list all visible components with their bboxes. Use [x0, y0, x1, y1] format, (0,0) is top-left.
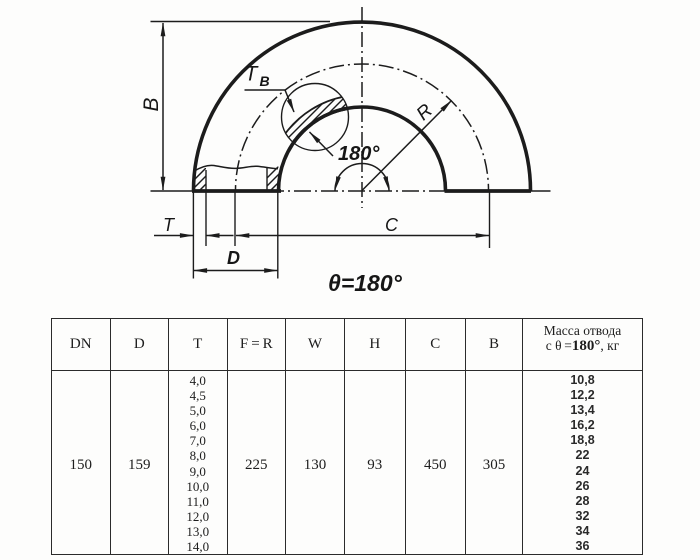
svg-text:T: T	[163, 215, 176, 235]
svg-text:θ=180°: θ=180°	[328, 270, 403, 296]
svg-text:180°: 180°	[338, 143, 380, 165]
svg-text:B: B	[140, 97, 163, 111]
svg-text:C: C	[385, 215, 399, 235]
svg-text:D: D	[227, 248, 240, 268]
svg-text:T: T	[245, 63, 260, 86]
svg-text:B: B	[260, 73, 270, 89]
svg-text:R: R	[413, 100, 437, 125]
